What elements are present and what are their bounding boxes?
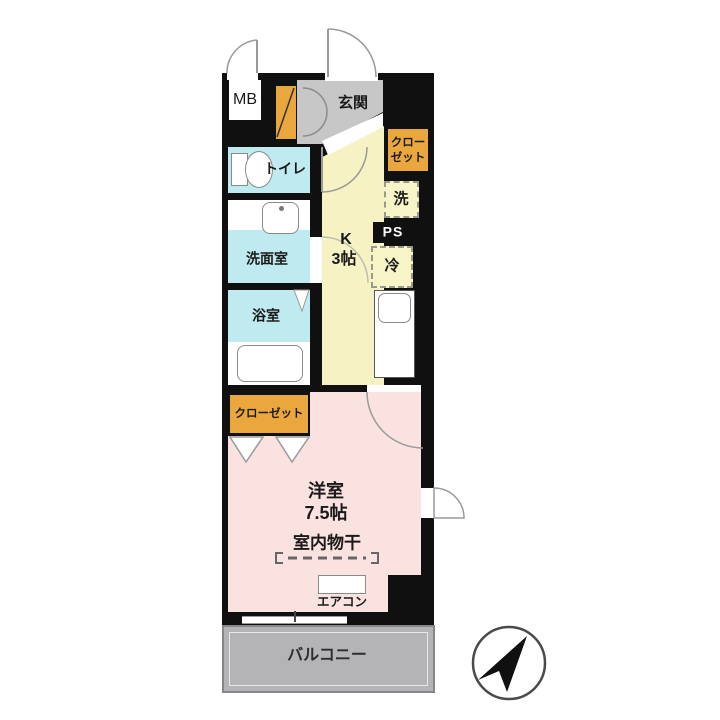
toilet-label: トイレ [264, 160, 306, 178]
kitchen-label: K [340, 230, 352, 250]
washroom-label: 洗面室 [246, 250, 288, 268]
room-door-swing-icon [367, 392, 423, 448]
washer-label: 洗 [393, 191, 408, 210]
shoe-cabinet-diagonal [277, 88, 294, 137]
folding-door-right-icon [276, 437, 309, 462]
kitchen-size-label: 3帖 [332, 250, 357, 270]
drying-bracket-right [371, 553, 378, 563]
bathroom-label: 浴室 [252, 307, 280, 325]
aircon-label: エアコン [317, 595, 367, 611]
cabinet-door-arc-bottom [303, 112, 327, 136]
cabinet-door-arc-top [303, 88, 327, 112]
entrance-step [322, 113, 383, 155]
western-room-label: 洋室 [308, 480, 344, 503]
closet-lower-label: クローゼット [235, 407, 304, 421]
side-window-swing-icon [434, 488, 464, 518]
ps-label: PS [383, 223, 404, 241]
indoor-drying-label: 室内物干 [293, 532, 361, 553]
fridge-label: 冷 [384, 258, 399, 277]
balcony-label: バルコニー [287, 646, 367, 666]
drying-bracket-left [276, 553, 283, 563]
closet-upper-label-2: ゼット [391, 151, 426, 165]
folding-door-left-icon [230, 437, 263, 462]
entrance-label: 玄関 [338, 95, 368, 114]
entrance-door-swing-icon [328, 29, 376, 77]
closet-upper-label-1: クロー [391, 136, 426, 150]
floor-plan: MB 玄関 クロー ゼット 洗 PS 冷 K 3帖 トイレ 洗面室 浴室 クロー… [0, 0, 720, 720]
mb-label: MB [233, 90, 257, 110]
mb-door-swing-icon [227, 40, 257, 73]
bathroom-door-icon [294, 290, 309, 311]
western-room-size-label: 7.5帖 [304, 502, 347, 525]
